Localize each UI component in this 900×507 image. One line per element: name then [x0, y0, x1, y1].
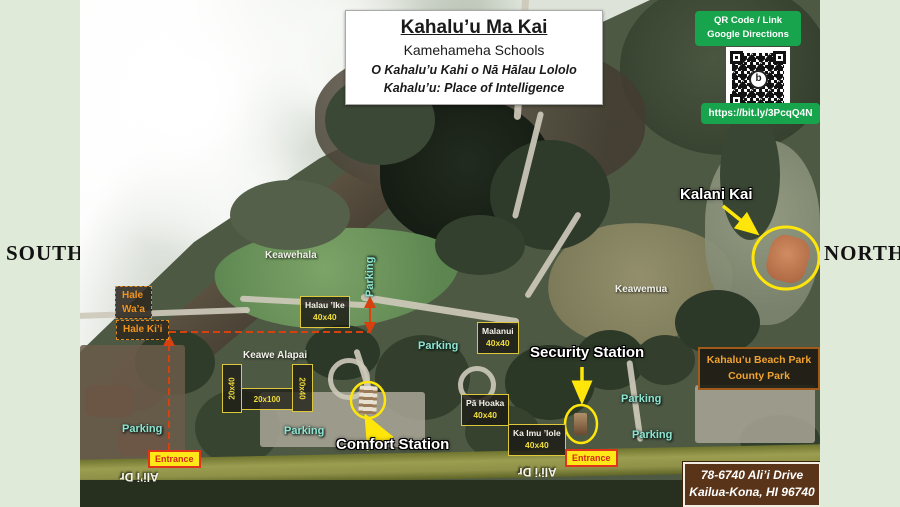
alii-drive-label-east: Ali’i Dr	[518, 465, 557, 479]
building-name: Ka Imu ’Iole	[513, 428, 561, 438]
building-box-ka-imu-iole: Ka Imu ’Iole 40x40	[508, 424, 566, 456]
entrance-badge-west: Entrance	[148, 450, 201, 468]
hale-waa-line2: Wa’a	[122, 303, 145, 317]
lot-box-20x100: 20x100	[241, 388, 293, 410]
parking-label: Parking	[632, 429, 672, 441]
building-box-malanui: Malanui 40x40	[477, 322, 519, 354]
kalani-kai-label: Kalani Kai	[680, 186, 753, 203]
lot-size: 20x40	[298, 377, 307, 399]
parking-lot-surface	[80, 345, 185, 465]
building-box-halau-ike: Halau ’Ike 40x40	[300, 296, 350, 328]
building-name: Malanui	[482, 326, 514, 336]
road-name: Ali’i Dr	[518, 465, 557, 479]
qr-caption-box: QR Code / Link Google Directions	[695, 11, 801, 46]
address-line2: Kailua-Kona, HI 96740	[687, 484, 817, 501]
building-size: 40x40	[305, 312, 345, 324]
page-subtitle: Kamehameha Schools	[350, 42, 598, 58]
area-label-keawe-alapai: Keawe Alapai	[243, 350, 307, 361]
building-size: 40x40	[482, 338, 514, 350]
compass-south-label: SOUTH	[6, 241, 80, 266]
security-station-label: Security Station	[530, 344, 644, 361]
parking-label: Parking	[418, 340, 458, 352]
building-box-pa-hoaka: Pā Hoaka 40x40	[461, 394, 509, 426]
beach-park-line2: County Park	[702, 368, 816, 384]
building-size: 40x40	[466, 410, 504, 422]
terrain-patch	[675, 290, 760, 355]
parking-label-vertical: Parking	[364, 257, 376, 297]
slide-canvas: SOUTH NORTH	[0, 0, 900, 507]
alii-drive-label-west: Ali’i Dr	[120, 470, 159, 484]
building-name: Halau ’Ike	[305, 300, 345, 310]
hale-kii-box: Hale Ki’i	[116, 320, 169, 340]
motto-line2: Kahalu’u: Place of Intelligence	[350, 79, 598, 97]
parking-label: Parking	[122, 423, 162, 435]
parking-label: Parking	[621, 393, 661, 405]
security-station-building	[574, 413, 587, 435]
comfort-station-label: Comfort Station	[336, 436, 449, 453]
terrain-patch	[435, 215, 525, 275]
title-card: Kahalu’u Ma Kai Kamehameha Schools O Kah…	[345, 10, 603, 105]
compass-north-label: NORTH	[824, 241, 898, 266]
lot-size: 20x100	[254, 395, 281, 404]
address-line1: 78-6740 Ali’i Drive	[687, 467, 817, 484]
parking-label: Parking	[284, 425, 324, 437]
directions-link[interactable]: https://bit.ly/3PcqQ4N	[701, 103, 820, 124]
hale-kii-label: Hale Ki’i	[123, 324, 162, 335]
hale-waa-line1: Hale	[122, 289, 145, 303]
road-name: Ali’i Dr	[120, 470, 159, 484]
address-box: 78-6740 Ali’i Drive Kailua-Kona, HI 9674…	[683, 462, 820, 507]
qr-caption-line2: Google Directions	[697, 28, 799, 42]
lot-size: 20x40	[228, 377, 237, 399]
motto-line1: O Kahalu’u Kahi o Nā Hālau Lololo	[350, 61, 598, 79]
beach-park-box: Kahalu’u Beach Park County Park	[698, 347, 820, 390]
qr-caption-line1: QR Code / Link	[697, 14, 799, 28]
lot-box-20x40-right: 20x40	[292, 364, 313, 412]
qr-finder-icon	[730, 51, 743, 64]
comfort-station-building	[358, 386, 377, 415]
qr-code: b	[726, 47, 790, 111]
terrain-patch	[720, 110, 780, 240]
entrance-badge-east: Entrance	[565, 449, 618, 467]
building-size: 40x40	[513, 440, 561, 452]
building-name: Pā Hoaka	[466, 398, 504, 408]
lot-box-20x40-left: 20x40	[222, 364, 242, 413]
beach-park-line1: Kahalu’u Beach Park	[702, 352, 816, 368]
parking-lot-surface	[695, 385, 815, 443]
page-title: Kahalu’u Ma Kai	[350, 17, 598, 39]
area-label-keawehala: Keawehala	[265, 250, 317, 261]
satellite-map: Keawehala Keawemua Keawe Alapai Kalani K…	[80, 0, 820, 507]
area-label-keawemua: Keawemua	[615, 284, 667, 295]
bitly-logo-icon: b	[749, 70, 768, 89]
hale-waa-box: Hale Wa’a	[115, 286, 152, 319]
qr-finder-icon	[773, 51, 786, 64]
terrain-patch	[230, 180, 350, 250]
